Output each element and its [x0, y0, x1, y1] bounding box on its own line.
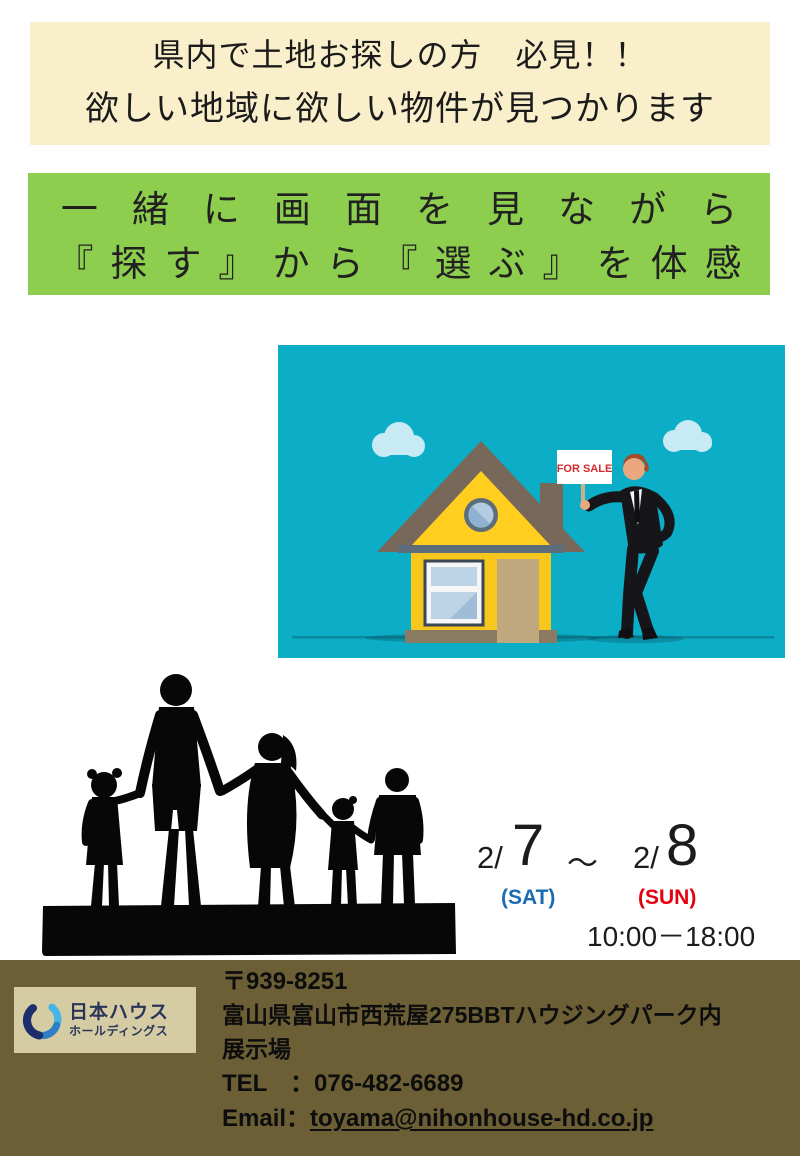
house-illustration: FOR SALE: [278, 345, 785, 658]
date1-month: 2/: [477, 840, 503, 876]
headline-line1: 県内で土地お探しの方 必見！！: [30, 33, 770, 77]
family-silhouette: [40, 663, 460, 957]
man-shadow: [588, 635, 684, 643]
date1-weekday-label: (SAT): [501, 886, 555, 910]
email-line: Email：toyama@nihonhouse-hd.co.jp: [222, 1101, 722, 1136]
event-hours: 10:00－18:00: [587, 915, 755, 955]
subheadline-line1-text: 一緒に画面を見ながら: [61, 186, 771, 234]
company-logo-text: 日本ハウス ホールディングス: [69, 1003, 169, 1038]
subheadline-line1: 一緒に画面を見ながら: [28, 186, 770, 234]
phone-number: 076-482-6689: [314, 1070, 463, 1097]
postal-code: 〒939-8251: [222, 965, 722, 998]
company-logo: 日本ハウス ホールディングス: [14, 987, 196, 1053]
address-line1: 富山県富山市西荒屋275BBTハウジングパーク内: [222, 998, 722, 1032]
email-address-link[interactable]: toyama@nihonhouse-hd.co.jp: [310, 1105, 653, 1132]
phone-label: TEL: [222, 1066, 290, 1101]
date2-day: 8: [666, 812, 698, 879]
headline-line2: 欲しい地域に欲しい物件が見つかります: [30, 86, 770, 132]
subheadline-line2: 『探す』から『選ぶ』を体感: [28, 240, 770, 288]
contact-info: 〒939-8251 富山県富山市西荒屋275BBTハウジングパーク内 展示場 T…: [222, 965, 722, 1136]
email-separator: ：: [286, 1105, 310, 1132]
company-name-line2: ホールディングス: [69, 1025, 169, 1038]
date2-weekday-label: (SUN): [638, 886, 696, 910]
family-silhouette-icon: [42, 674, 456, 956]
address-line2: 展示場: [222, 1032, 722, 1066]
phone-separator: ：: [290, 1070, 314, 1097]
for-sale-text: FOR SALE: [557, 463, 613, 475]
subheadline-line2-text: 『探す』から『選ぶ』を体感: [56, 240, 758, 288]
company-logo-swirl-icon: [22, 1000, 62, 1040]
footer: 日本ハウス ホールディングス 〒939-8251 富山県富山市西荒屋275BBT…: [0, 960, 800, 1156]
date2-month: 2/: [633, 840, 659, 876]
headline-banner: 県内で土地お探しの方 必見！！ 欲しい地域に欲しい物件が見つかります: [30, 22, 770, 145]
company-name-line1: 日本ハウス: [69, 1003, 169, 1023]
house-illustration-svg: FOR SALE: [278, 345, 785, 658]
event-dates: 2/ 7 ～ 2/ 8 (SAT) (SUN) 10:00－18:00: [455, 812, 795, 957]
date-range-separator: ～: [567, 838, 598, 883]
family-silhouette-svg: [40, 663, 460, 957]
email-label: Email: [222, 1105, 286, 1132]
phone-line: TEL：076-482-6689: [222, 1066, 722, 1101]
date1-day: 7: [512, 812, 544, 879]
flyer-page: 県内で土地お探しの方 必見！！ 欲しい地域に欲しい物件が見つかります 一緒に画面…: [0, 0, 800, 1156]
subheadline-banner: 一緒に画面を見ながら 『探す』から『選ぶ』を体感: [28, 173, 770, 295]
